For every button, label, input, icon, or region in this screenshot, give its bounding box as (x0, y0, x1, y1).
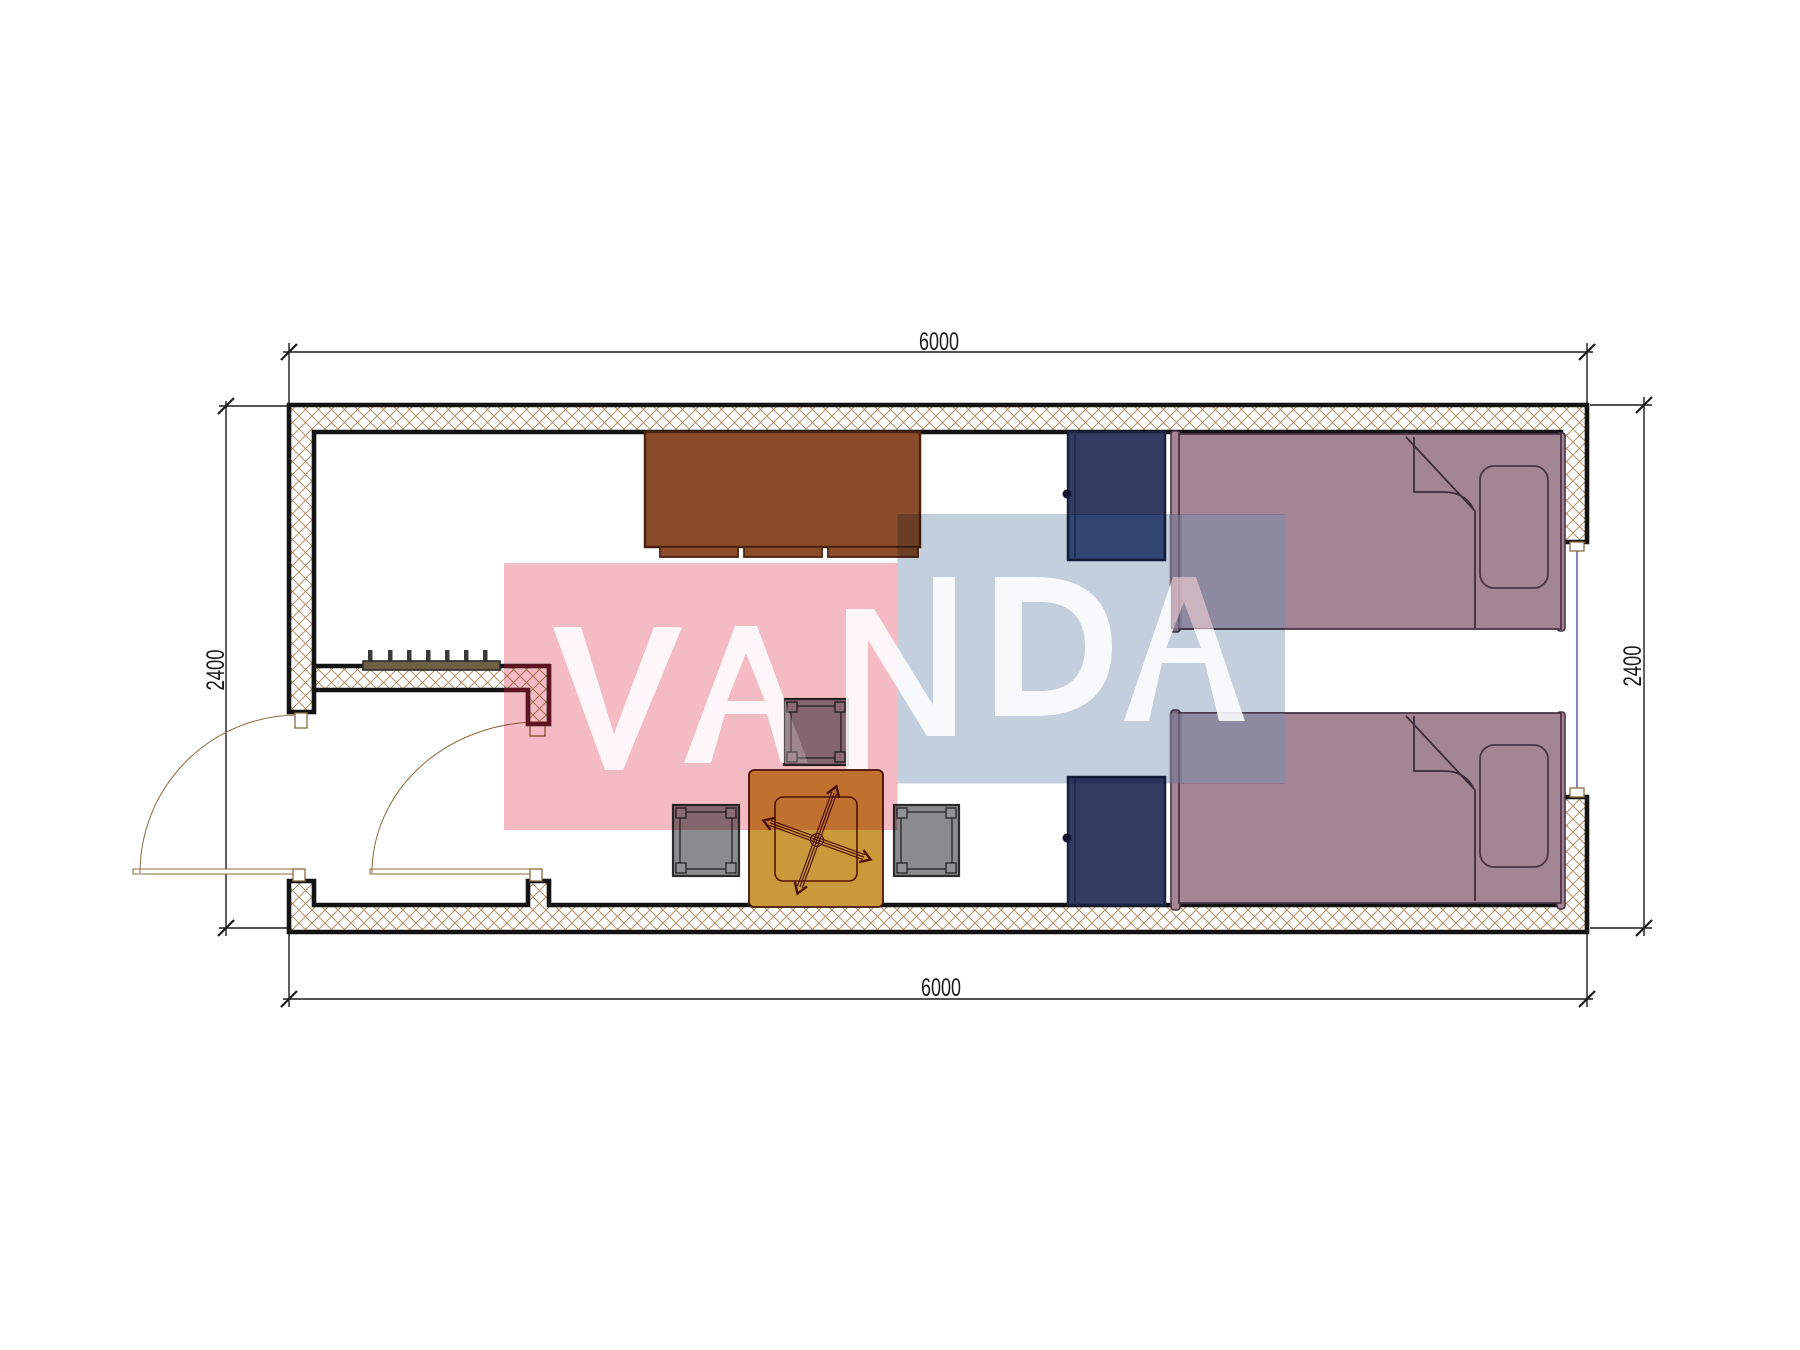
svg-text:2400: 2400 (202, 650, 230, 691)
svg-text:6000: 6000 (919, 328, 959, 356)
svg-text:2400: 2400 (1619, 646, 1647, 687)
svg-text:6000: 6000 (921, 974, 961, 1002)
